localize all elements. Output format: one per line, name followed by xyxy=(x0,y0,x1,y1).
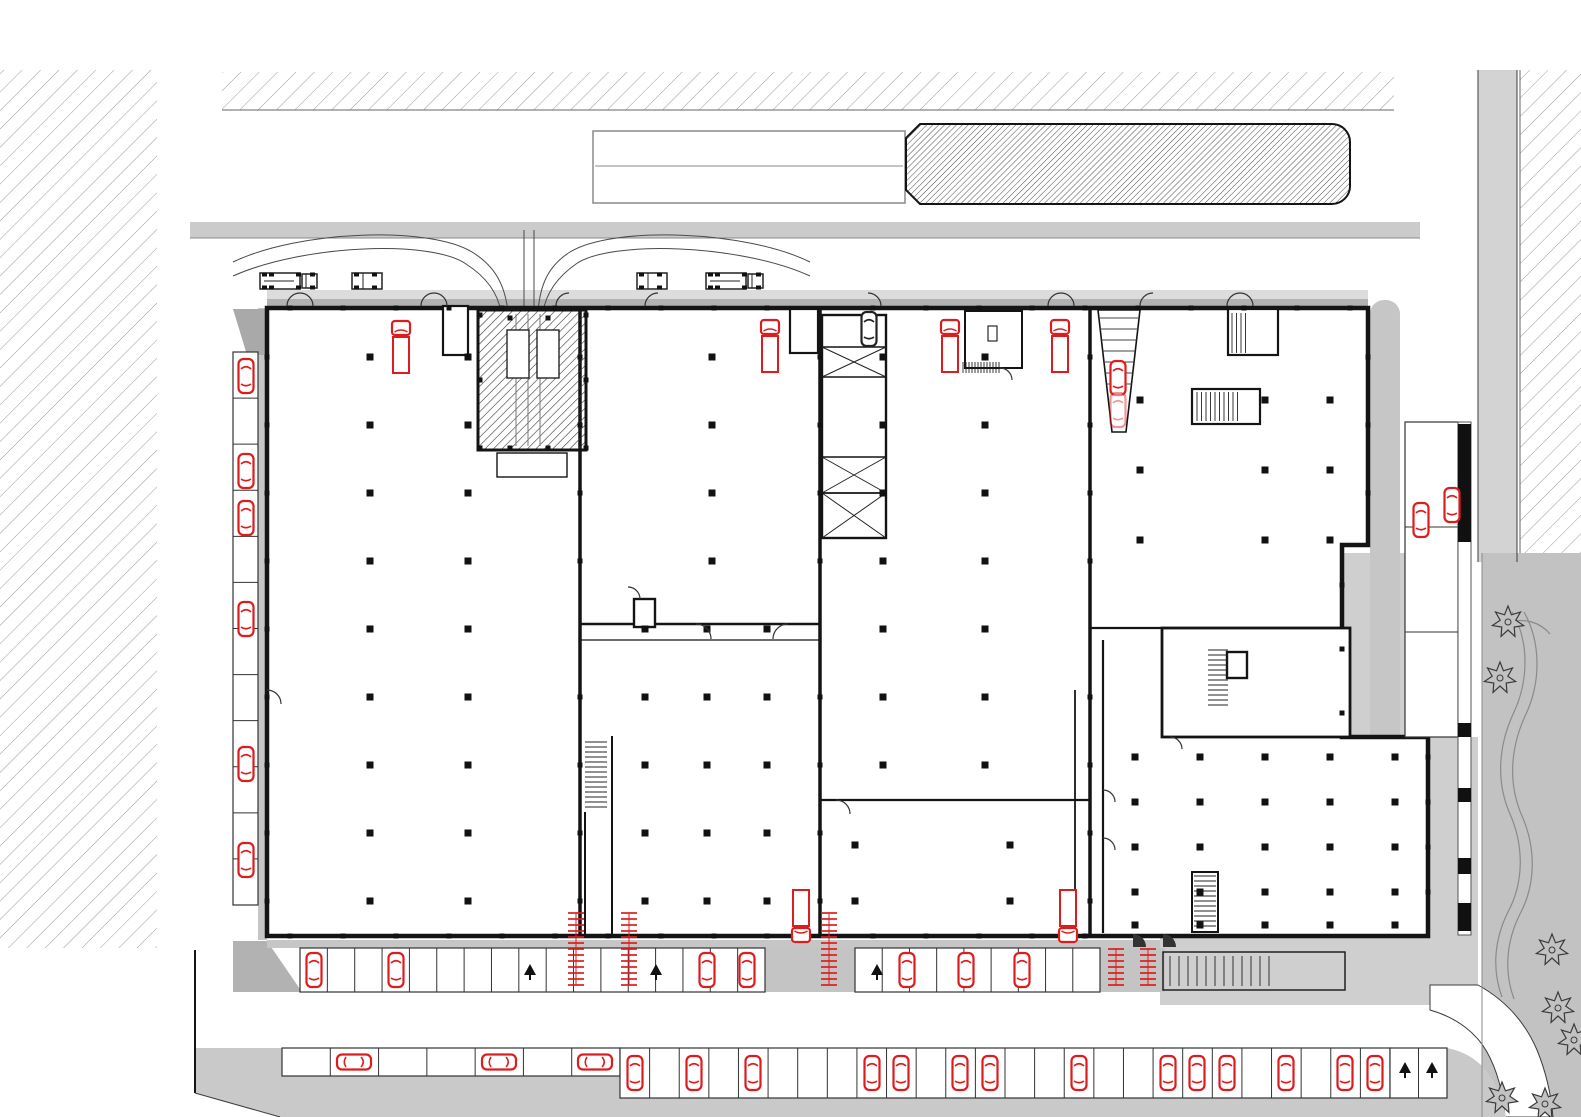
column-marker xyxy=(1327,467,1334,474)
column-marker xyxy=(465,830,472,837)
column-marker xyxy=(367,626,374,633)
wall-tick xyxy=(818,355,823,360)
column-marker xyxy=(764,830,771,837)
column-marker xyxy=(1007,898,1014,905)
column-marker xyxy=(880,694,887,701)
wall-tick xyxy=(546,446,551,451)
wall-tick xyxy=(712,934,717,939)
wall-tick xyxy=(818,695,823,700)
column-marker xyxy=(1132,844,1139,851)
wall-tick xyxy=(288,934,293,939)
column-marker xyxy=(367,694,374,701)
red-truck xyxy=(761,320,779,372)
column-marker xyxy=(1262,889,1269,896)
column-marker xyxy=(1132,799,1139,806)
red-car xyxy=(1015,953,1030,987)
column-marker xyxy=(1262,467,1269,474)
column-marker xyxy=(1197,754,1204,761)
red-car xyxy=(983,1056,998,1090)
red-truck xyxy=(1051,320,1069,372)
wall-tick xyxy=(1242,306,1247,311)
wall-tick xyxy=(1426,845,1431,850)
column-marker xyxy=(764,762,771,769)
wall-tick xyxy=(1366,355,1371,360)
column-marker xyxy=(852,842,859,849)
column-marker xyxy=(704,830,711,837)
column-marker xyxy=(465,558,472,565)
south-arcade xyxy=(267,940,1160,948)
column-marker xyxy=(880,762,887,769)
red-car xyxy=(953,1056,968,1090)
column-marker xyxy=(1392,889,1399,896)
facade-opening xyxy=(1458,723,1471,737)
wall-tick xyxy=(578,559,583,564)
wall-tick xyxy=(578,423,583,428)
red-car xyxy=(239,501,254,535)
wall-tick xyxy=(578,763,583,768)
wall-tick xyxy=(1426,800,1431,805)
column-marker xyxy=(709,422,716,429)
facade-opening xyxy=(1458,424,1471,542)
column-marker xyxy=(1197,889,1204,896)
wall-tick xyxy=(1295,306,1300,311)
red-car xyxy=(1190,1056,1205,1090)
bottom-parking-row xyxy=(620,1048,1390,1098)
wall-tick xyxy=(1083,934,1088,939)
green-roof-strip xyxy=(906,124,1350,204)
column-marker xyxy=(764,626,771,633)
wall-tick xyxy=(1340,583,1345,588)
wall-tick xyxy=(659,934,664,939)
parking-bay-strip xyxy=(282,1048,620,1076)
wall-tick xyxy=(765,306,770,311)
wall-tick xyxy=(265,627,270,632)
wall-tick xyxy=(584,446,589,451)
wall-tick xyxy=(1088,559,1093,564)
column-marker xyxy=(642,626,649,633)
red-car xyxy=(865,1056,880,1090)
column-marker xyxy=(982,694,989,701)
dock-bumper xyxy=(537,330,559,378)
wall-tick xyxy=(447,306,452,311)
wall-tick xyxy=(578,899,583,904)
wall-tick xyxy=(1340,711,1345,716)
column-marker xyxy=(1137,397,1144,404)
column-marker xyxy=(367,558,374,565)
red-car xyxy=(959,953,974,987)
side-room xyxy=(790,309,818,353)
column-marker xyxy=(642,898,649,905)
red-car xyxy=(1445,488,1460,522)
column-marker xyxy=(465,354,472,361)
wall-tick xyxy=(818,899,823,904)
wall-tick xyxy=(1088,355,1093,360)
column-marker xyxy=(880,422,887,429)
column-marker xyxy=(367,490,374,497)
south-parking-row-b xyxy=(855,948,1100,992)
column-marker xyxy=(1327,889,1334,896)
wall-tick xyxy=(288,306,293,311)
column-marker xyxy=(1137,467,1144,474)
elevator-1 xyxy=(634,599,655,627)
wall-tick xyxy=(500,306,505,311)
red-car xyxy=(482,1055,516,1070)
wall-tick xyxy=(1088,763,1093,768)
column-marker xyxy=(709,490,716,497)
bottom-parallel-row xyxy=(282,1048,620,1076)
dock-pit xyxy=(497,453,567,477)
red-car xyxy=(700,953,715,987)
wall-tick xyxy=(265,423,270,428)
column-marker xyxy=(1392,922,1399,929)
wall-tick xyxy=(1083,306,1088,311)
bike-rack-icon xyxy=(1108,949,1124,985)
column-marker xyxy=(367,422,374,429)
east-sidewalk xyxy=(1478,70,1517,562)
ne-walkway xyxy=(1370,300,1400,792)
wall-tick xyxy=(265,831,270,836)
column-marker xyxy=(982,762,989,769)
column-marker xyxy=(1327,844,1334,851)
black-semi-truck xyxy=(260,273,317,290)
wall-tick xyxy=(265,899,270,904)
wall-tick xyxy=(508,316,513,321)
wall-tick xyxy=(478,378,483,383)
column-marker xyxy=(982,354,989,361)
red-truck xyxy=(941,320,959,372)
wall-tick xyxy=(265,763,270,768)
bike-rack-icon xyxy=(1140,949,1156,985)
red-car xyxy=(1414,503,1429,537)
wall-tick xyxy=(1088,899,1093,904)
wall-tick xyxy=(1340,647,1345,652)
wall-tick xyxy=(712,306,717,311)
red-car xyxy=(894,1056,909,1090)
column-marker xyxy=(880,490,887,497)
column-marker xyxy=(1327,754,1334,761)
column-marker xyxy=(465,898,472,905)
wall-tick xyxy=(1088,491,1093,496)
black-car xyxy=(862,312,877,346)
column-marker xyxy=(704,898,711,905)
wall-tick xyxy=(578,355,583,360)
wall-tick xyxy=(1136,306,1141,311)
column-marker xyxy=(852,898,859,905)
red-car xyxy=(900,953,915,987)
wall-tick xyxy=(584,378,589,383)
wall-tick xyxy=(1088,423,1093,428)
wall-tick xyxy=(553,306,558,311)
black-semi-truck xyxy=(706,273,763,290)
entry-ramp xyxy=(478,310,586,450)
ramp-area xyxy=(478,310,586,450)
column-marker xyxy=(465,422,472,429)
red-car xyxy=(740,953,755,987)
wall-tick xyxy=(606,934,611,939)
site-plan-canvas xyxy=(0,0,1581,1117)
column-marker xyxy=(367,762,374,769)
black-tractor-truck xyxy=(637,273,667,290)
wall-tick xyxy=(977,934,982,939)
column-marker xyxy=(1197,922,1204,929)
wall-tick xyxy=(478,446,483,451)
column-marker xyxy=(1327,799,1334,806)
column-marker xyxy=(1392,844,1399,851)
red-car xyxy=(628,1056,643,1090)
red-car xyxy=(1072,1056,1087,1090)
wall-tick xyxy=(546,316,551,321)
column-marker xyxy=(642,762,649,769)
wall-tick xyxy=(1426,890,1431,895)
column-marker xyxy=(704,694,711,701)
wall-tick xyxy=(500,934,505,939)
ramp-car xyxy=(1111,361,1126,395)
arcade-outer xyxy=(267,290,1368,299)
column-marker xyxy=(367,830,374,837)
column-marker xyxy=(982,490,989,497)
shaft-stack xyxy=(822,315,886,538)
wall-tick xyxy=(341,934,346,939)
boundary-strip-north xyxy=(222,72,1394,110)
column-marker xyxy=(982,558,989,565)
column-marker xyxy=(982,626,989,633)
column-marker xyxy=(642,830,649,837)
column-marker xyxy=(465,694,472,701)
wall-tick xyxy=(871,934,876,939)
wall-tick xyxy=(394,934,399,939)
facade-opening xyxy=(1458,788,1471,802)
wall-tick xyxy=(1366,491,1371,496)
red-car xyxy=(1338,1056,1353,1090)
column-marker xyxy=(1262,799,1269,806)
wall-tick xyxy=(1030,934,1035,939)
facade-opening xyxy=(1458,858,1471,874)
wall-tick xyxy=(1189,306,1194,311)
column-marker xyxy=(1327,537,1334,544)
bottom-tree-bays xyxy=(1390,1048,1447,1098)
column-marker xyxy=(1262,922,1269,929)
wall-tick xyxy=(584,313,589,318)
wall-tick xyxy=(1366,423,1371,428)
column-marker xyxy=(1137,537,1144,544)
red-car xyxy=(1161,1056,1176,1090)
column-marker xyxy=(1392,799,1399,806)
wall-tick xyxy=(1348,306,1353,311)
wall-tick xyxy=(606,306,611,311)
vacant-parcel-west xyxy=(0,70,157,948)
column-marker xyxy=(1262,537,1269,544)
column-marker xyxy=(709,354,716,361)
red-car xyxy=(578,1055,612,1070)
parking-bay-strip xyxy=(1405,422,1458,737)
red-car xyxy=(1279,1056,1294,1090)
red-truck xyxy=(792,890,810,942)
wall-tick xyxy=(818,423,823,428)
wall-tick xyxy=(1030,306,1035,311)
red-truck xyxy=(392,321,410,373)
red-car xyxy=(1220,1056,1235,1090)
wall-tick xyxy=(818,559,823,564)
wall-tick xyxy=(1426,755,1431,760)
sw-wedge xyxy=(233,941,302,992)
dock-recess xyxy=(765,948,855,992)
red-car xyxy=(1368,1056,1383,1090)
wall-tick xyxy=(1088,695,1093,700)
wall-tick xyxy=(765,934,770,939)
column-marker xyxy=(465,490,472,497)
dock-bumper xyxy=(507,330,529,378)
wall-tick xyxy=(478,313,483,318)
column-marker xyxy=(704,762,711,769)
column-marker xyxy=(880,558,887,565)
ramp-car xyxy=(1111,393,1126,427)
black-tractor-truck xyxy=(352,273,382,290)
red-car xyxy=(307,953,322,987)
nw-wedge xyxy=(233,309,267,355)
column-marker xyxy=(367,898,374,905)
wall-tick xyxy=(659,306,664,311)
stair-core-4 xyxy=(1192,389,1260,424)
stair-room-ne xyxy=(1228,309,1278,355)
red-car xyxy=(239,454,254,488)
vacant-parcel-east xyxy=(1520,70,1581,562)
column-marker xyxy=(367,354,374,361)
red-car xyxy=(239,843,254,877)
red-truck xyxy=(1059,890,1077,942)
wall-tick xyxy=(578,831,583,836)
red-car xyxy=(389,953,404,987)
wall-tick xyxy=(447,934,452,939)
wall-tick xyxy=(871,306,876,311)
column-marker xyxy=(642,694,649,701)
parking-bay-strip xyxy=(855,948,1100,992)
column-marker xyxy=(880,626,887,633)
red-car xyxy=(687,1056,702,1090)
wall-tick xyxy=(818,763,823,768)
red-car xyxy=(239,747,254,781)
wall-tick xyxy=(1088,831,1093,836)
wall-tick xyxy=(553,934,558,939)
north-road-band xyxy=(190,222,1420,238)
east-parking-nook xyxy=(1405,422,1458,737)
wall-tick xyxy=(924,934,929,939)
wall-tick xyxy=(578,695,583,700)
column-marker xyxy=(1132,754,1139,761)
column-marker xyxy=(1262,754,1269,761)
wall-tick xyxy=(341,306,346,311)
red-car xyxy=(239,359,254,393)
column-marker xyxy=(1392,754,1399,761)
column-marker xyxy=(465,626,472,633)
wall-tick xyxy=(818,491,823,496)
column-marker xyxy=(1132,922,1139,929)
column-marker xyxy=(1327,397,1334,404)
wall-tick xyxy=(977,306,982,311)
facade-opening xyxy=(1458,903,1471,931)
column-marker xyxy=(465,762,472,769)
column-marker xyxy=(1197,799,1204,806)
column-marker xyxy=(1197,844,1204,851)
column-marker xyxy=(709,558,716,565)
red-car xyxy=(746,1056,761,1090)
wall-tick xyxy=(818,831,823,836)
wall-tick xyxy=(265,559,270,564)
wall-tick xyxy=(265,355,270,360)
column-marker xyxy=(880,354,887,361)
column-marker xyxy=(1327,922,1334,929)
floor-plan-viewport xyxy=(0,0,1581,1117)
column-marker xyxy=(1262,397,1269,404)
wall-tick xyxy=(265,491,270,496)
entry-notch xyxy=(443,306,468,355)
wall-tick xyxy=(508,446,513,451)
column-marker xyxy=(1007,842,1014,849)
column-marker xyxy=(764,694,771,701)
wall-tick xyxy=(924,306,929,311)
office-table xyxy=(988,326,997,341)
wall-tick xyxy=(394,306,399,311)
central-core xyxy=(1162,628,1350,737)
column-marker xyxy=(1132,889,1139,896)
column-marker xyxy=(1262,844,1269,851)
wall-tick xyxy=(578,491,583,496)
wall-tick xyxy=(265,695,270,700)
column-marker xyxy=(764,898,771,905)
column-marker xyxy=(982,422,989,429)
loading-canopy xyxy=(593,131,905,203)
elevator-4 xyxy=(1227,652,1247,678)
red-car xyxy=(337,1055,371,1070)
red-car xyxy=(239,602,254,636)
